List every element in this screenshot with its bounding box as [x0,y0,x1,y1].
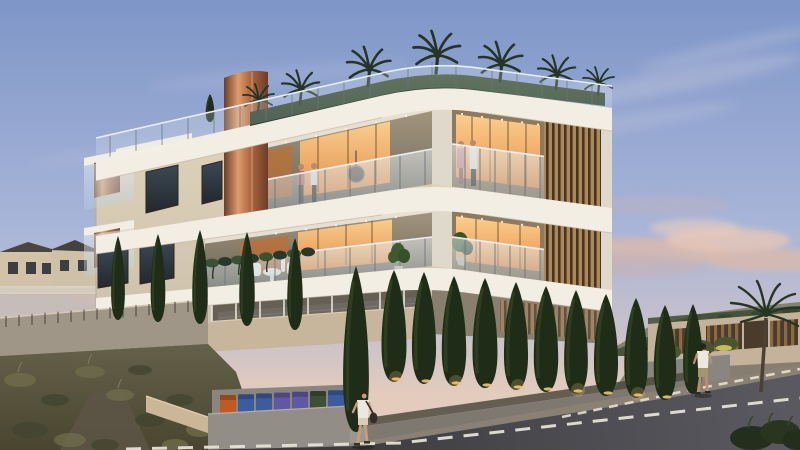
render-viewport: Dusk photorealistic 3D architectural ren… [0,0,800,450]
background-fence [0,286,110,294]
shoul­der-bag [370,413,378,424]
corner-column [432,106,452,187]
louver-screen-lower [544,224,601,289]
bins-area [208,384,366,450]
architectural-render: Dusk photorealistic 3D architectural ren… [0,0,800,450]
balcony-upper-right [452,109,544,199]
louver-screen-upper [544,122,601,207]
